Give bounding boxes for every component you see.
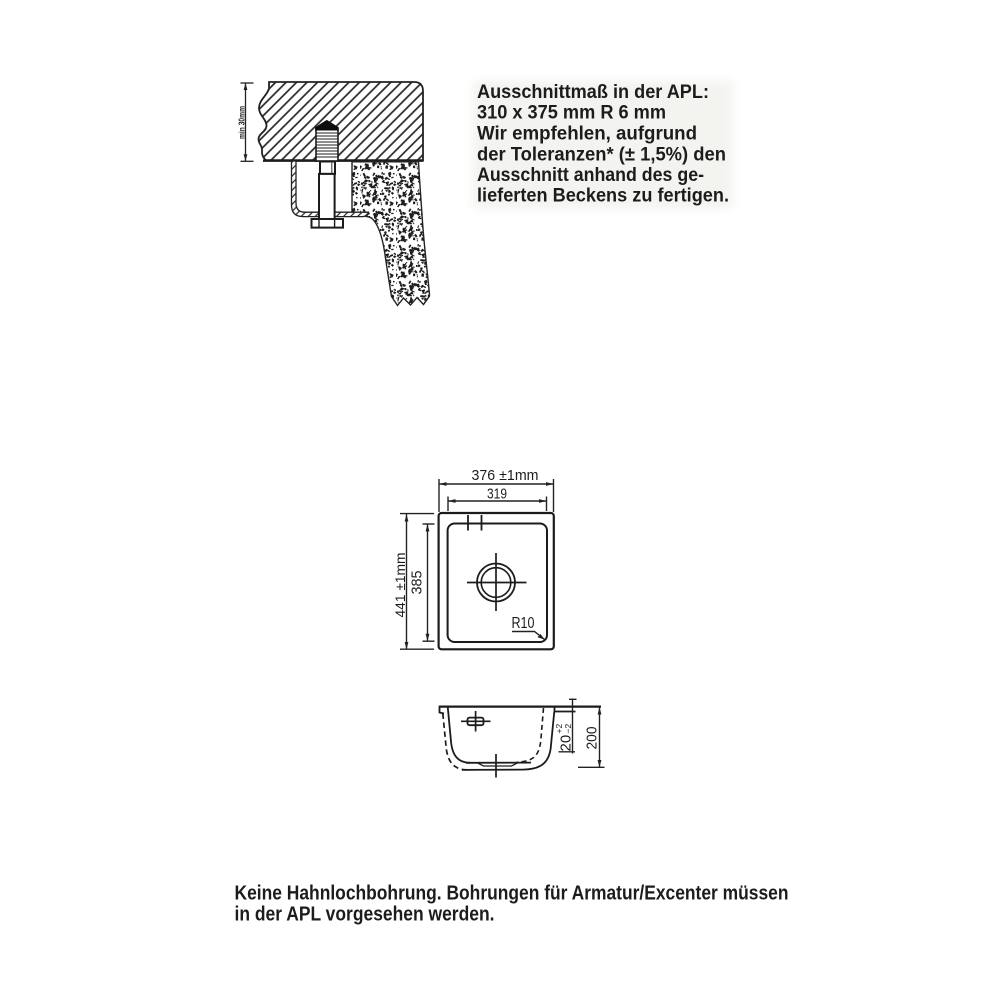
svg-text:Wir empfehlen, aufgrund: Wir empfehlen, aufgrund (477, 124, 697, 145)
svg-text:Ausschnitt anhand des ge-: Ausschnitt anhand des ge- (477, 165, 704, 186)
svg-text:441 ±1mm: 441 ±1mm (392, 553, 408, 618)
svg-text:310 x 375 mm R 6 mm: 310 x 375 mm R 6 mm (477, 103, 666, 124)
svg-text:20+2−2: 20+2−2 (554, 724, 575, 752)
svg-text:lieferten Beckens zu fertigen.: lieferten Beckens zu fertigen. (477, 186, 729, 207)
svg-text:in der APL vorgesehen werden.: in der APL vorgesehen werden. (235, 904, 495, 926)
svg-text:min 30mm: min 30mm (237, 106, 247, 139)
svg-text:R10: R10 (512, 615, 535, 632)
svg-text:376 ±1mm: 376 ±1mm (472, 467, 539, 484)
svg-text:319: 319 (487, 486, 507, 502)
svg-text:385: 385 (409, 571, 426, 595)
svg-text:Ausschnittmaß in der APL:: Ausschnittmaß in der APL: (477, 82, 709, 103)
svg-text:200: 200 (584, 727, 601, 750)
svg-text:Keine Hahnlochbohrung. Bohrung: Keine Hahnlochbohrung. Bohrungen für Arm… (235, 883, 789, 905)
svg-text:der Toleranzen* (± 1,5%) den: der Toleranzen* (± 1,5%) den (477, 144, 726, 165)
